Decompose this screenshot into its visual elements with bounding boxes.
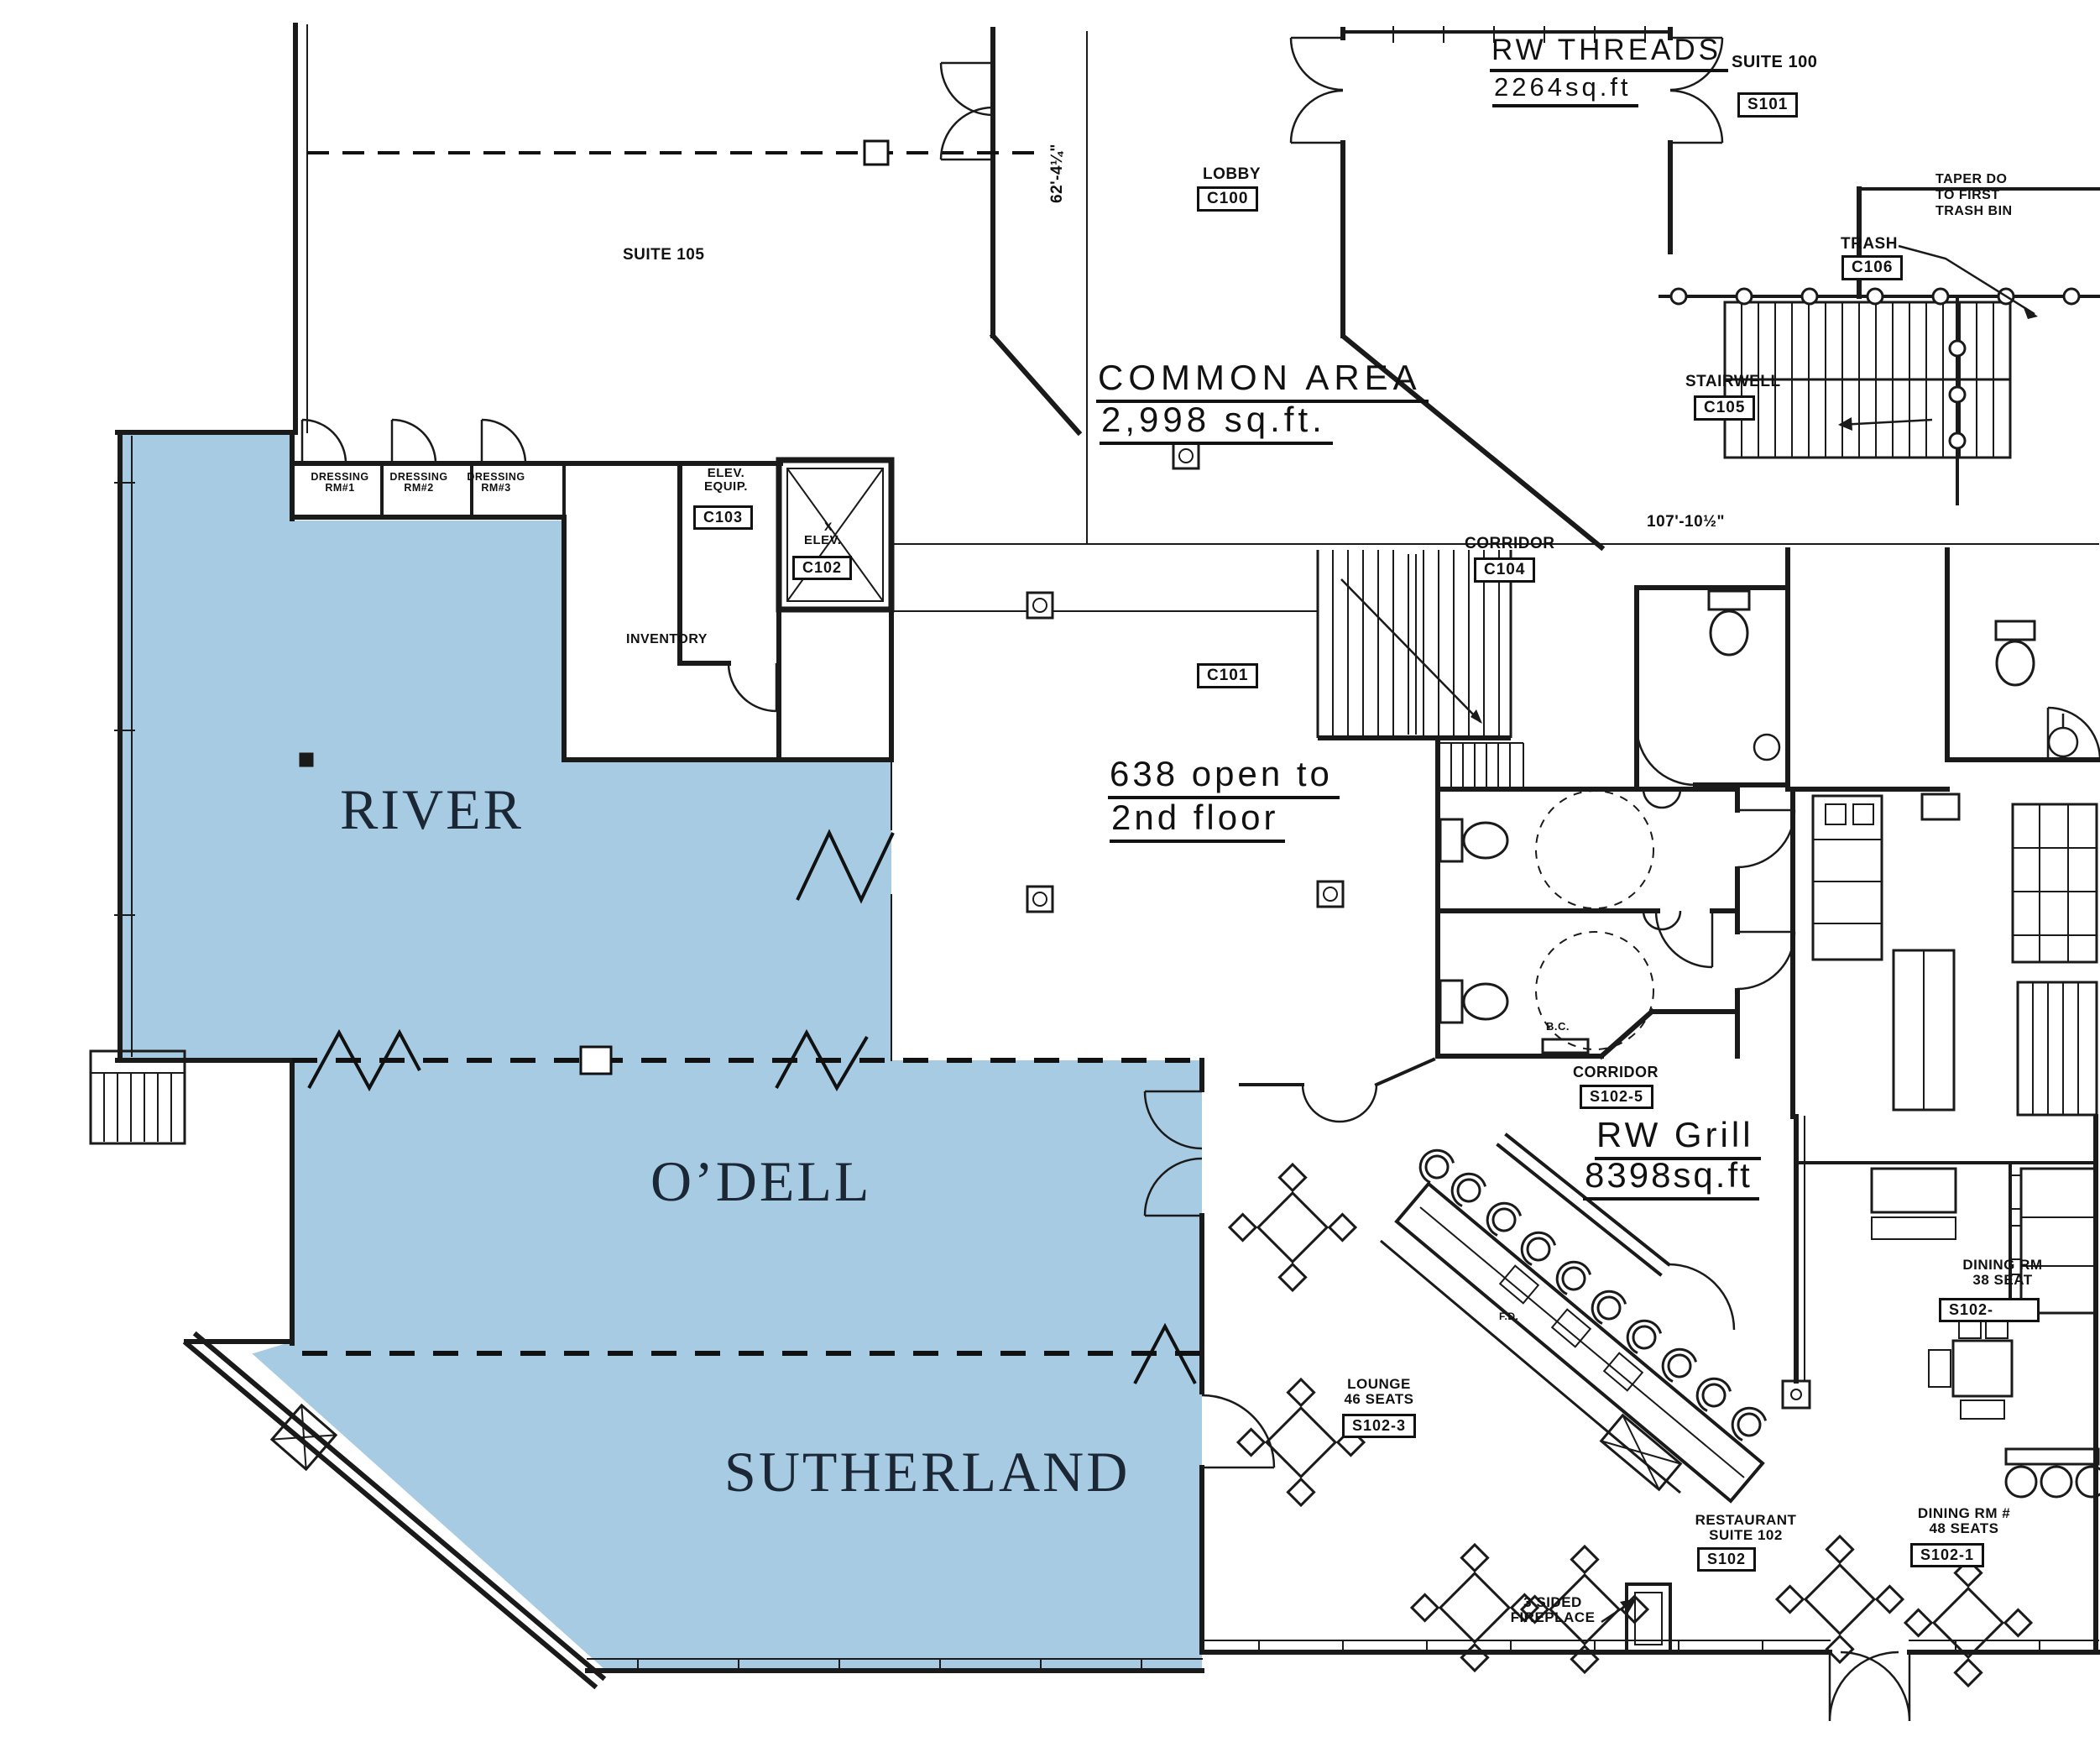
- suite-100-tag: S101: [1737, 92, 1798, 118]
- river-highlight: [118, 432, 891, 1060]
- taper-note-line3: TRASH BIN: [1935, 205, 2013, 219]
- dimension-horizontal: 107'-10½": [1647, 514, 1725, 531]
- taper-note-line2: TO FIRST: [1935, 189, 2000, 203]
- common-area-sqft: 2,998 sq.ft.: [1100, 400, 1333, 445]
- dining-rm-48-label: DINING RM #48 SEATS: [1887, 1506, 2041, 1536]
- inventory-label: INVENTORY: [626, 633, 708, 647]
- dining-rm-38-label: DINING RM38 SEAT: [1919, 1258, 2087, 1288]
- corridor-c104-tag: C104: [1474, 557, 1535, 583]
- suite-area-rw-threads: 2264sq.ft: [1492, 72, 1638, 107]
- taper-note-line1: TAPER DO: [1935, 173, 2007, 187]
- floor-drain-label: F.D.: [1499, 1311, 1518, 1322]
- stairwell-tag: C105: [1694, 395, 1755, 421]
- elevator-x-mark: X: [824, 521, 833, 533]
- odell-room-name: O’DELL: [650, 1148, 871, 1215]
- common-area-name: COMMON AREA: [1096, 358, 1429, 403]
- elevator-label: ELEV.: [804, 534, 841, 547]
- dressing-room-2-label: DRESSINGRM#2: [379, 472, 458, 494]
- elevator-tag: C102: [792, 556, 852, 580]
- elev-equip-tag: C103: [693, 505, 753, 530]
- rw-grill-name: RW Grill: [1595, 1115, 1761, 1160]
- bc-label: B.C.: [1546, 1021, 1570, 1033]
- suite-105-label: SUITE 105: [623, 247, 704, 264]
- dressing-room-1-label: DRESSINGRM#1: [300, 472, 379, 494]
- corridor-s102-5-tag: S102-5: [1580, 1085, 1653, 1109]
- sutherland-room-name: SUTHERLAND: [724, 1439, 1130, 1505]
- dressing-room-3-label: DRESSINGRM#3: [457, 472, 535, 494]
- suite-name-rw-threads: RW THREADS: [1490, 34, 1728, 72]
- stair-c101-tag: C101: [1197, 663, 1258, 688]
- suite-100-label: SUITE 100: [1732, 54, 1817, 71]
- trash-tag: C106: [1841, 255, 1903, 280]
- floor-plan: RW THREADS 2264sq.ft SUITE 100 S101 TAPE…: [0, 0, 2100, 1763]
- trash-label: TRASH: [1841, 236, 1898, 253]
- dimension-vertical: 62'-4¼": [1049, 144, 1066, 203]
- stairwell-label: STAIRWELL: [1685, 374, 1781, 390]
- dining-rm-48-tag: S102-1: [1910, 1543, 1984, 1567]
- lobby-tag: C100: [1197, 186, 1258, 212]
- booth-seating: [1872, 1169, 2100, 1497]
- lobby-label: LOBBY: [1203, 166, 1261, 183]
- corridor-s102-5-label: CORRIDOR: [1573, 1065, 1659, 1080]
- river-room-name: RIVER: [340, 777, 524, 843]
- sutherland-highlight: [252, 1353, 1202, 1671]
- restaurant-tag: S102: [1697, 1547, 1756, 1572]
- lounge-tag: S102-3: [1342, 1414, 1416, 1438]
- fireplace-note: 3 SIDEDFIREPLACE: [1502, 1595, 1603, 1625]
- kitchen-equipment: [1813, 794, 2097, 1115]
- corridor-c104-label: CORRIDOR: [1465, 536, 1554, 552]
- elev-equip-label: ELEV.EQUIP.: [684, 467, 768, 494]
- lounge-label: LOUNGE46 SEATS: [1330, 1377, 1428, 1407]
- restaurant-label: RESTAURANTSUITE 102: [1683, 1513, 1809, 1543]
- open-to-2nd-floor-line2: 2nd floor: [1110, 798, 1285, 843]
- rw-grill-area: 8398sq.ft: [1583, 1155, 1759, 1201]
- dining-rm-38-tag: S102-: [1939, 1298, 2040, 1322]
- open-to-2nd-floor-line1: 638 open to: [1108, 754, 1340, 799]
- bar: [1381, 1184, 1763, 1501]
